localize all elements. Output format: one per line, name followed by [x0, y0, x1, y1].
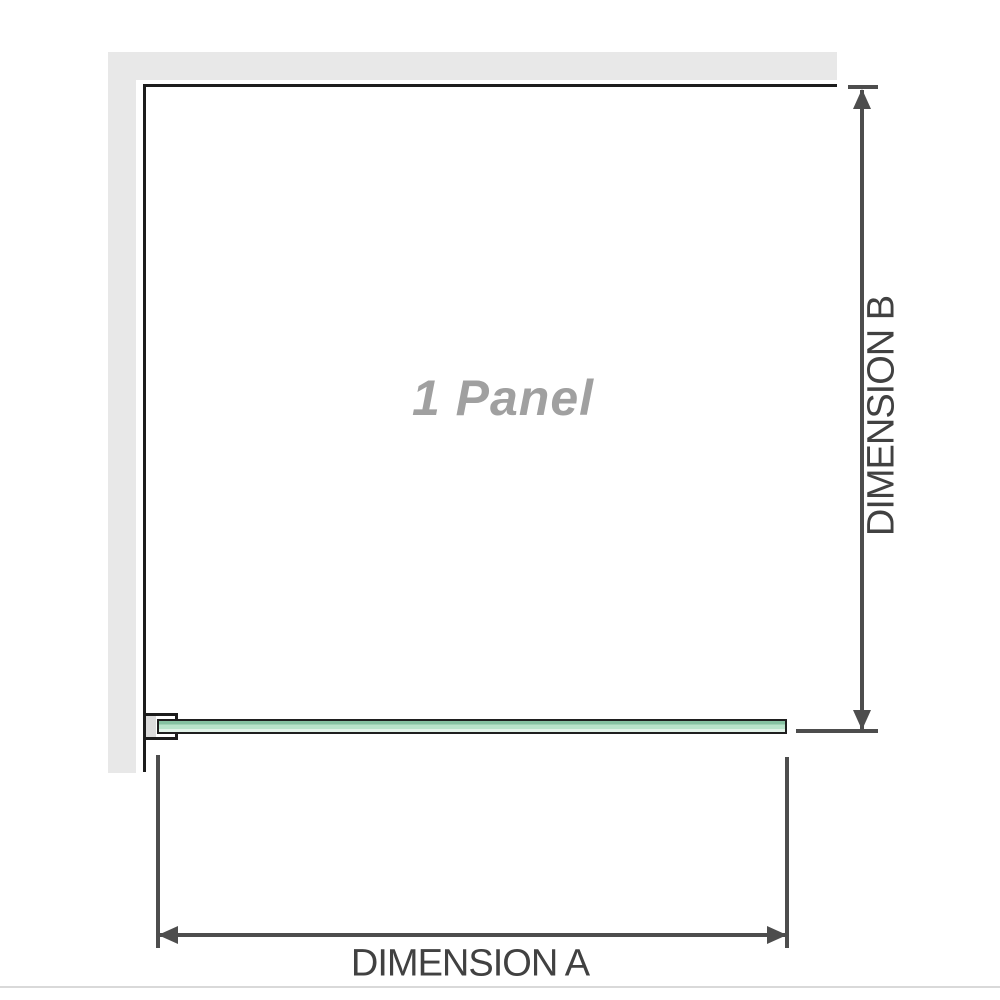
wall-top: [108, 52, 837, 80]
dimension-a-line: [158, 933, 787, 937]
arrow-right-icon: [767, 926, 787, 944]
dimension-a-left-extension: [156, 755, 160, 948]
arrow-left-icon: [158, 926, 178, 944]
dimension-a-label: DIMENSION A: [351, 943, 589, 986]
dimension-b-label: DIMENSION B: [861, 296, 904, 536]
enclosure-outline: [143, 84, 837, 772]
glass-panel: [157, 719, 787, 734]
arrow-down-icon: [853, 710, 871, 730]
bottom-rule: [0, 986, 1000, 988]
arrow-up-icon: [853, 89, 871, 109]
panel-count-label: 1 Panel: [412, 369, 594, 427]
wall-left: [108, 52, 136, 773]
dimension-a-right-extension: [785, 757, 789, 948]
